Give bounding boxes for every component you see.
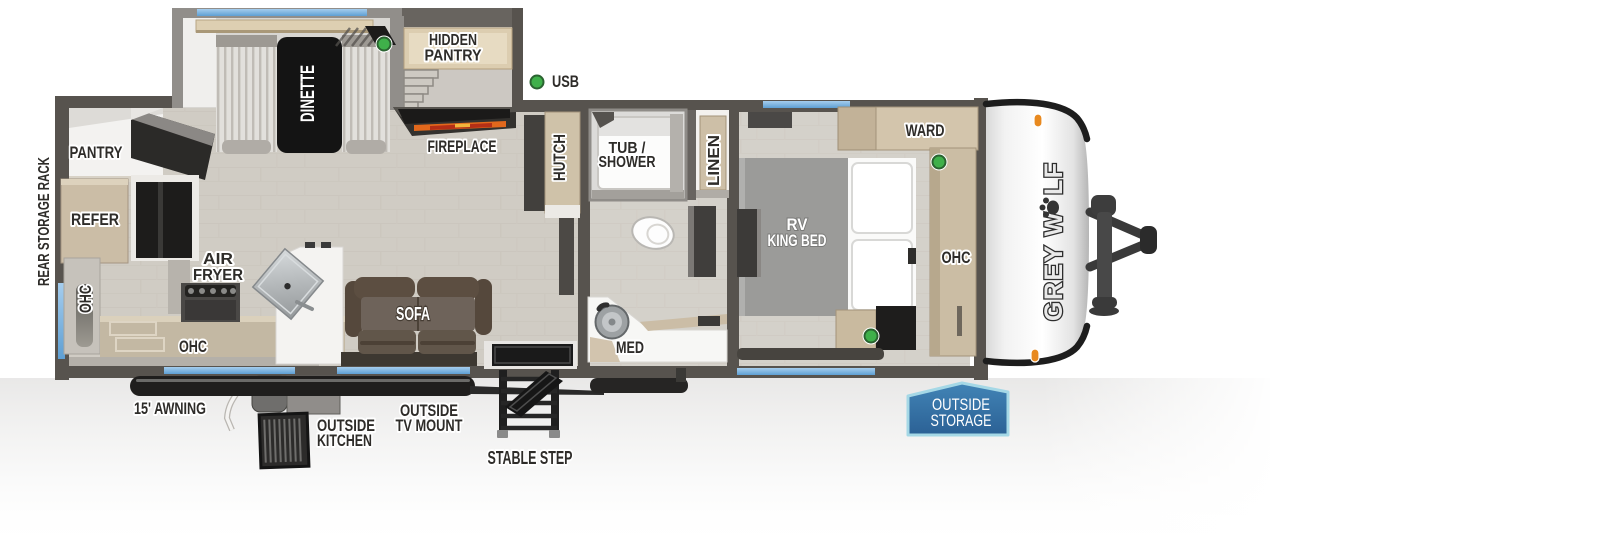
svg-text:AIR: AIR: [203, 251, 233, 268]
svg-text:SHOWER: SHOWER: [599, 154, 656, 171]
svg-text:STORAGE: STORAGE: [931, 412, 992, 430]
svg-text:KITCHEN: KITCHEN: [317, 432, 372, 450]
svg-text:DINETTE: DINETTE: [298, 65, 319, 122]
svg-text:KING BED: KING BED: [768, 231, 827, 250]
svg-text:WARD: WARD: [906, 122, 945, 140]
svg-text:OHC: OHC: [179, 338, 207, 356]
svg-text:15' AWNING: 15' AWNING: [134, 400, 206, 418]
svg-text:REFER: REFER: [71, 210, 119, 229]
svg-text:TV MOUNT: TV MOUNT: [396, 417, 463, 435]
svg-text:HUTCH: HUTCH: [551, 134, 569, 181]
svg-text:PANTRY: PANTRY: [425, 48, 482, 65]
svg-text:OHC: OHC: [942, 249, 971, 267]
svg-text:GREY W: GREY W: [1040, 211, 1068, 321]
svg-text:USB: USB: [552, 72, 579, 91]
svg-text:PANTRY: PANTRY: [70, 143, 124, 162]
svg-text:SOFA: SOFA: [396, 304, 430, 324]
svg-text:STABLE STEP: STABLE STEP: [488, 448, 573, 468]
svg-text:REAR STORAGE RACK: REAR STORAGE RACK: [36, 156, 53, 286]
svg-text:FRYER: FRYER: [193, 267, 243, 284]
svg-text:HIDDEN: HIDDEN: [429, 32, 477, 49]
svg-text:LINEN: LINEN: [706, 135, 723, 186]
svg-text:OHC: OHC: [76, 285, 95, 313]
svg-text:LF: LF: [1040, 161, 1068, 195]
svg-text:FIREPLACE: FIREPLACE: [428, 138, 497, 156]
svg-text:MED: MED: [616, 339, 644, 357]
